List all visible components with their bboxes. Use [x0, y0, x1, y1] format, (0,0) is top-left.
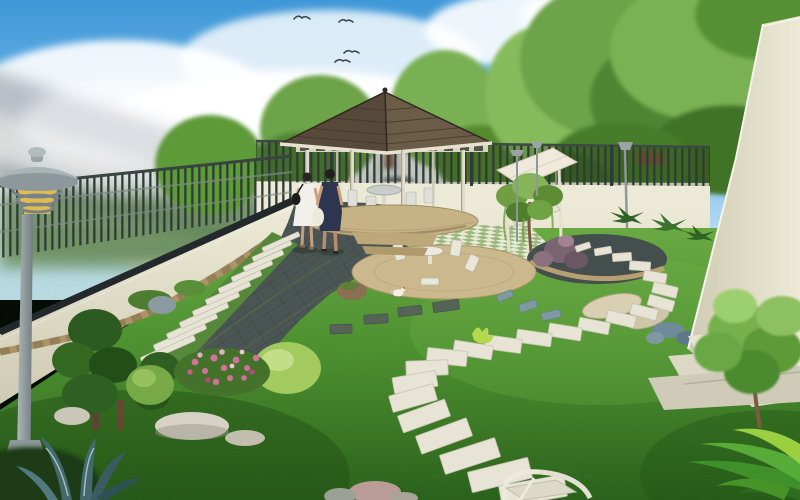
flower-bed	[174, 348, 270, 396]
patio-rock	[337, 282, 367, 300]
gazebo-finial	[383, 88, 388, 93]
white-bag	[312, 208, 324, 226]
garden-render	[0, 0, 800, 500]
garden-scene	[0, 0, 800, 500]
blue-rock	[148, 296, 176, 314]
gazebo-step-1	[352, 232, 438, 246]
